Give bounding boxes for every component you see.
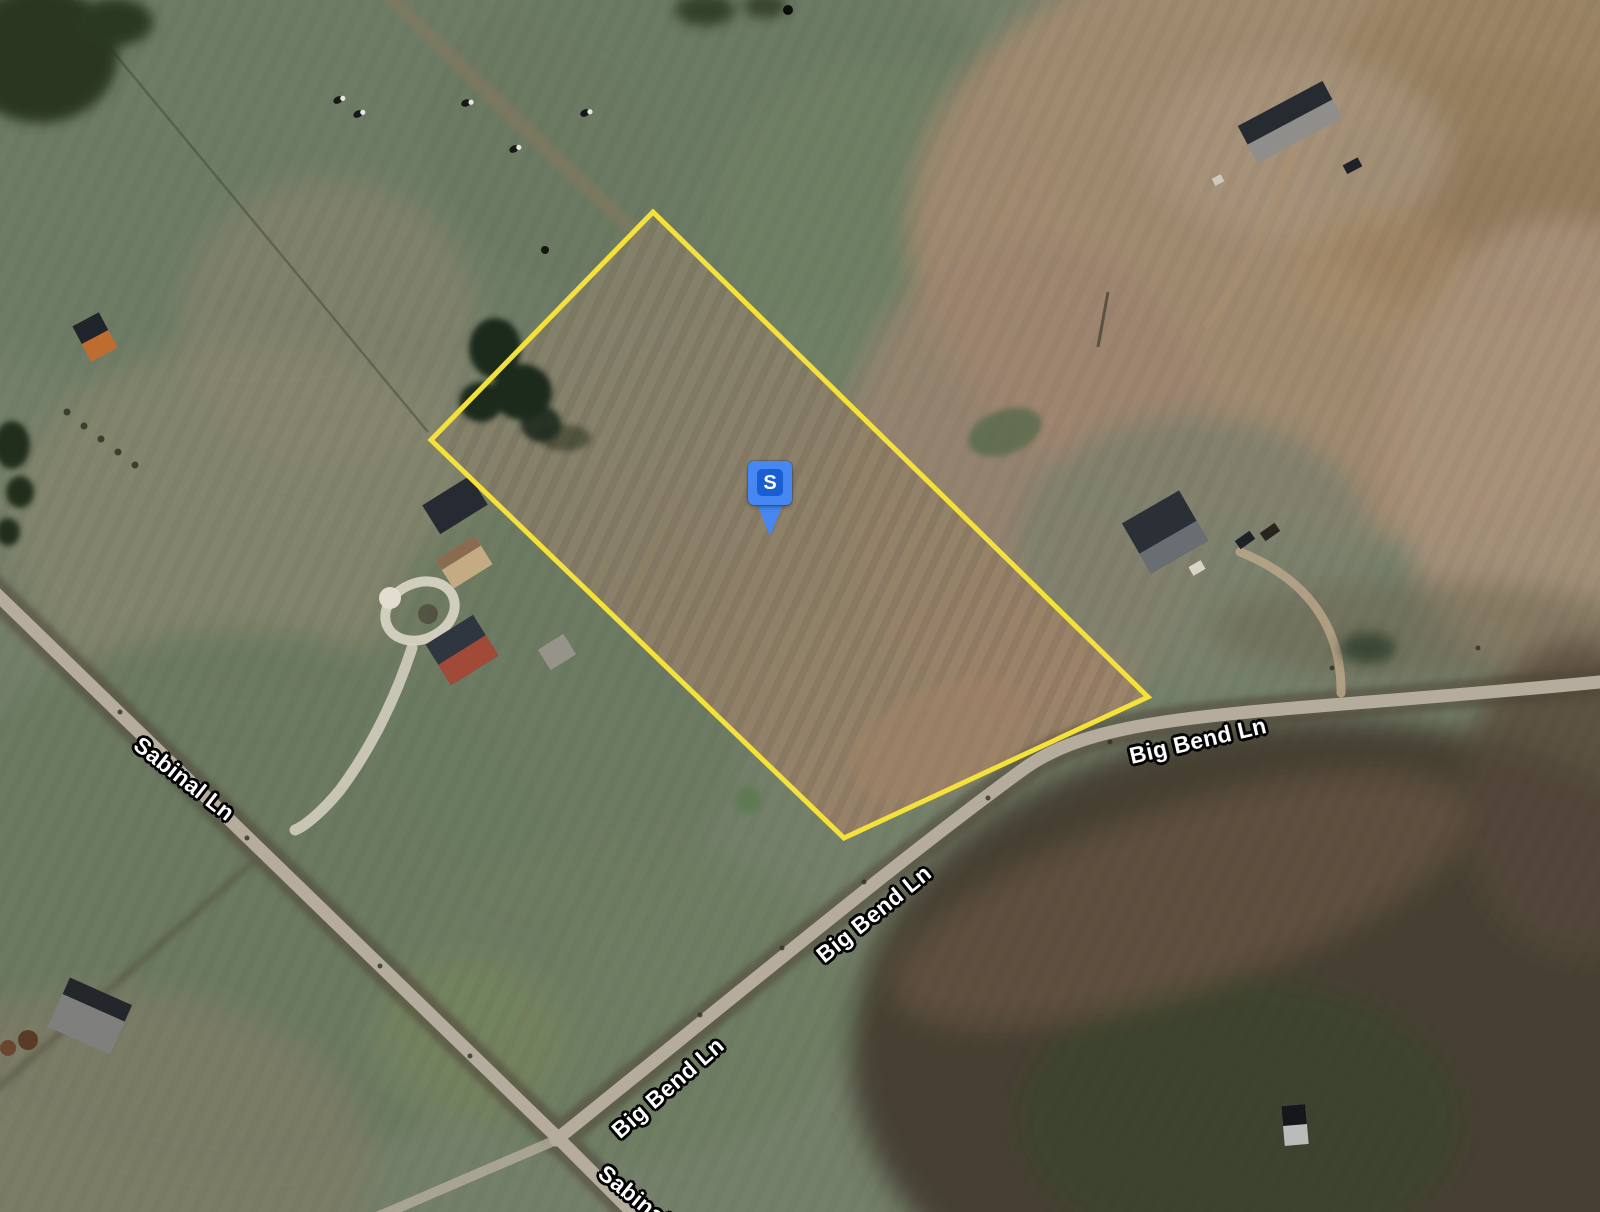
saved-place-marker[interactable]: S xyxy=(748,461,792,541)
marker-tip-icon xyxy=(756,502,784,536)
satellite-map-view[interactable]: Sabinal Ln Big Bend Ln Big Bend Ln Big B… xyxy=(0,0,1600,1212)
building-shed-bottomright xyxy=(1281,1104,1308,1146)
marker-letter: S xyxy=(763,473,776,493)
marker-letter-badge: S xyxy=(757,469,783,496)
satellite-imagery xyxy=(0,0,1600,1212)
